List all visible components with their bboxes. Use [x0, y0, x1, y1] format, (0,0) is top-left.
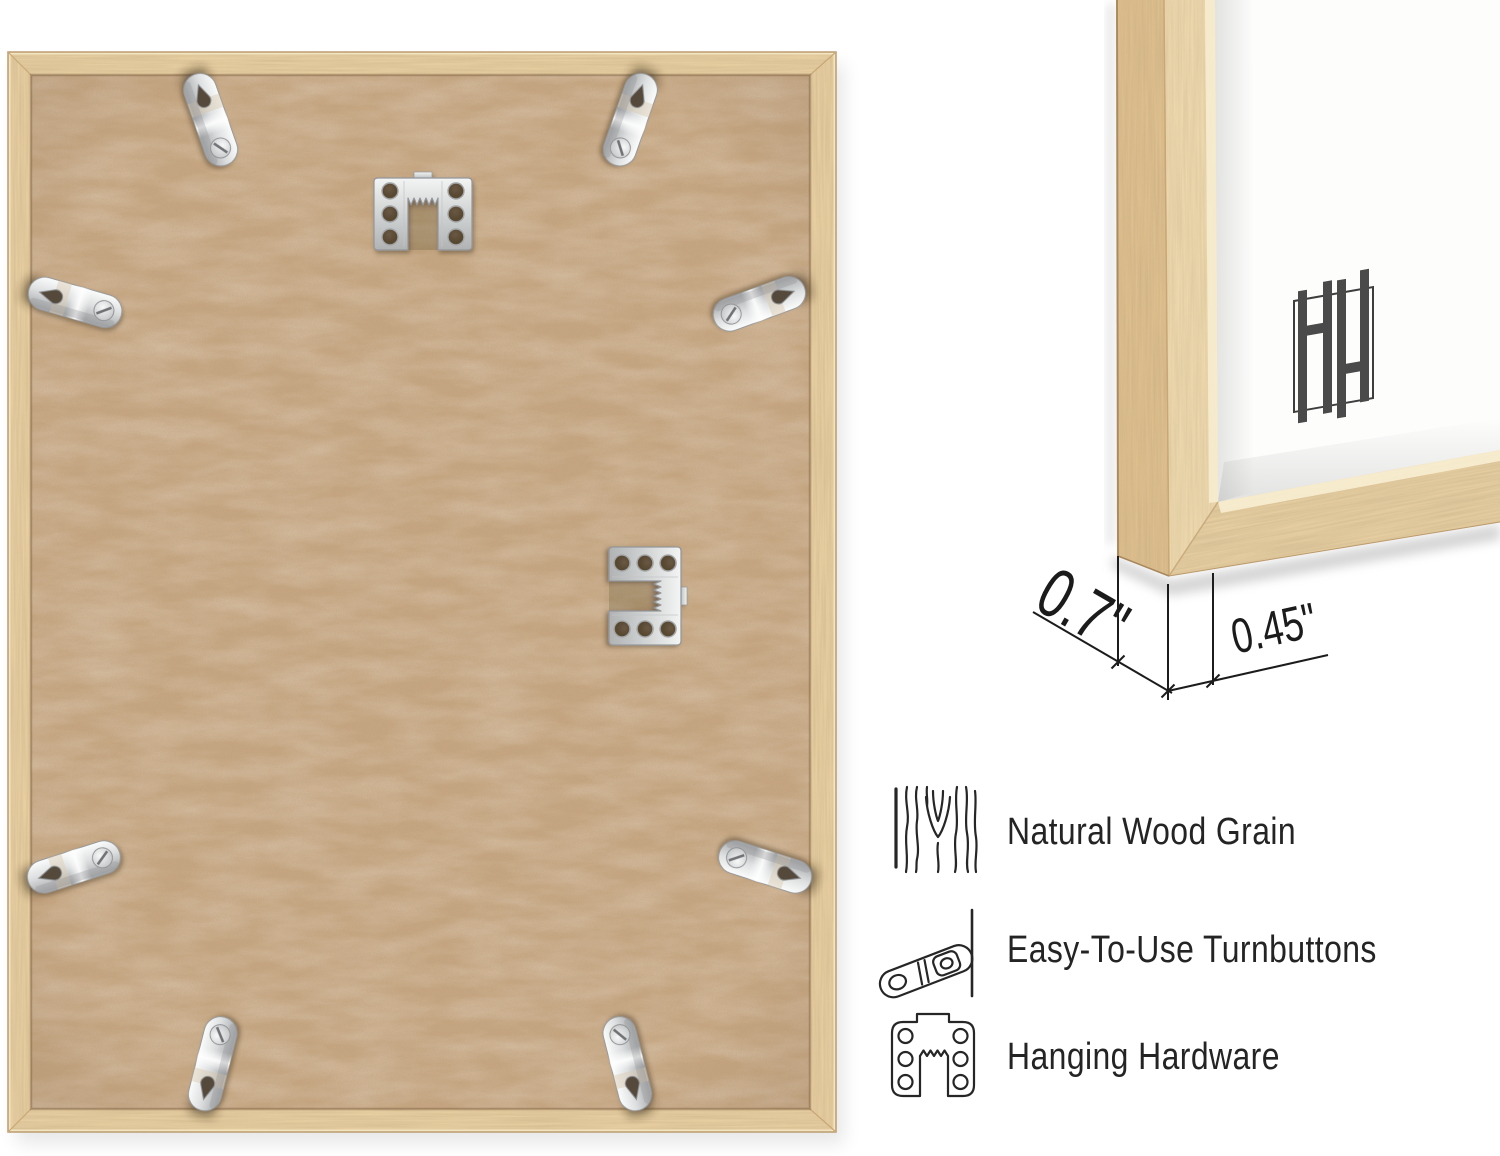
feature-icons [876, 787, 977, 1096]
feature-label-hanging-hardware: Hanging Hardware [1007, 1033, 1280, 1081]
product-infographic: 0.7" 0.45" Natural Wood Grain Easy-To-Us… [0, 0, 1500, 1156]
wood-grain-icon [896, 787, 977, 872]
frame-back-photo [0, 40, 850, 1147]
turnbutton-icon [876, 910, 976, 1001]
sawtooth-hanger-middle [609, 547, 687, 645]
product-graphics [0, 0, 1500, 1156]
feature-label-turnbuttons: Easy-To-Use Turnbuttons [1007, 926, 1377, 974]
feature-label-wood-grain: Natural Wood Grain [1007, 808, 1296, 856]
sawtooth-hanger-top [374, 172, 472, 250]
hanging-hardware-icon [892, 1014, 974, 1096]
